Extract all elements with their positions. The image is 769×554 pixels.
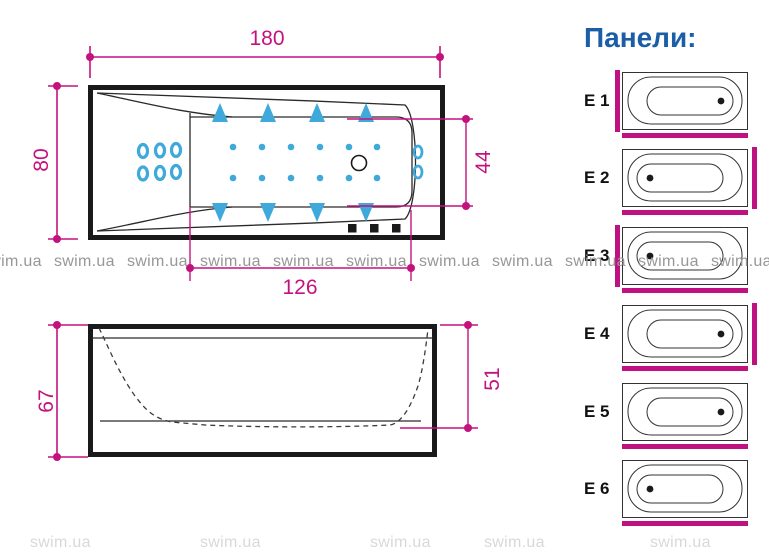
side-panel-bar-left <box>615 225 620 287</box>
side-view-drawing <box>48 321 478 461</box>
side-panel-bar-left <box>615 70 620 132</box>
dim-label-51: 51 <box>472 359 512 399</box>
panel-option-e2: E 2 <box>560 149 769 219</box>
panel-label: E 2 <box>584 168 620 188</box>
front-panel-bar <box>622 288 748 293</box>
top-view-drawing <box>48 46 473 281</box>
panel-label: E 6 <box>584 479 620 499</box>
panels-title: Панели: <box>584 22 697 54</box>
watermark-text: swim.ua <box>650 534 711 552</box>
drain-dot <box>647 486 654 493</box>
drain-dot <box>647 175 654 182</box>
side-panel-bar-right <box>752 147 757 209</box>
dim-label-126: 126 <box>265 277 335 298</box>
tub-icon-drain-left <box>622 227 748 285</box>
dim-180-lines <box>90 46 440 78</box>
drain-dot <box>718 331 725 338</box>
dim-label-44: 44 <box>463 142 503 182</box>
front-panel-bar <box>622 366 748 371</box>
tub-icon-drain-left <box>622 149 748 207</box>
drain-dot <box>647 253 654 260</box>
drain-dot <box>718 409 725 416</box>
panel-option-e4: E 4 <box>560 305 769 375</box>
side-panel-bar-right <box>752 303 757 365</box>
panel-option-e5: E 5 <box>560 383 769 453</box>
panel-option-e6: E 6 <box>560 460 769 530</box>
dim-label-67: 67 <box>26 381 66 421</box>
tub-icon-drain-left <box>622 460 748 518</box>
front-panel-bar <box>622 521 748 526</box>
tub-drawings <box>0 0 560 541</box>
dim-label-80: 80 <box>21 140 61 180</box>
tub-icon-drain-right <box>622 72 748 130</box>
dim-label-180: 180 <box>237 28 297 49</box>
panel-label: E 5 <box>584 402 620 422</box>
drain-dot <box>718 98 725 105</box>
front-panel-bar <box>622 210 748 215</box>
front-panel-bar <box>622 444 748 449</box>
front-panel-bar <box>622 133 748 138</box>
tub-icon-drain-right <box>622 383 748 441</box>
panel-option-e1: E 1 <box>560 72 769 142</box>
panel-label: E 4 <box>584 324 620 344</box>
tub-outline-side-view <box>91 327 435 455</box>
bathtub-spec-diagram: 180 80 44 126 67 51 Панели: E 1 E 2 E 3 <box>0 0 769 541</box>
control-buttons <box>348 224 401 233</box>
drain-circle <box>352 156 367 171</box>
panel-option-e3: E 3 <box>560 227 769 297</box>
tub-icon-drain-right <box>622 305 748 363</box>
